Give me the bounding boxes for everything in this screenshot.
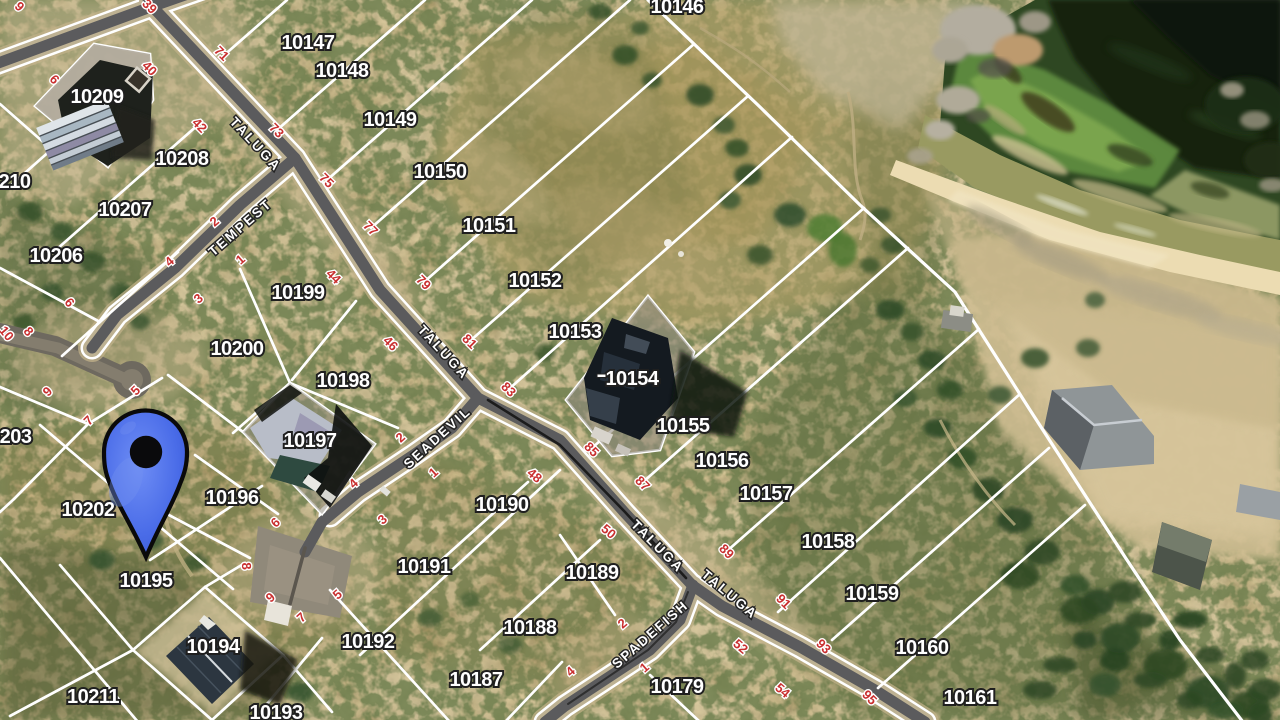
svg-text:10187: 10187: [449, 669, 502, 691]
svg-text:10199: 10199: [271, 282, 324, 304]
svg-text:10153: 10153: [548, 321, 601, 343]
svg-text:10198: 10198: [316, 370, 369, 392]
svg-text:10149: 10149: [363, 109, 416, 131]
svg-text:10152: 10152: [508, 270, 561, 292]
svg-text:10150: 10150: [413, 161, 466, 183]
svg-text:10161: 10161: [943, 687, 996, 709]
svg-text:10195: 10195: [119, 570, 172, 592]
svg-text:10157: 10157: [739, 483, 792, 505]
svg-text:10210: 10210: [0, 171, 31, 193]
svg-text:10197: 10197: [283, 430, 336, 452]
svg-text:10188: 10188: [503, 617, 556, 639]
svg-text:10207: 10207: [98, 199, 151, 221]
svg-text:10208: 10208: [155, 148, 208, 170]
svg-text:10202: 10202: [61, 499, 114, 521]
svg-text:10196: 10196: [205, 487, 258, 509]
svg-text:10189: 10189: [565, 562, 618, 584]
svg-text:10160: 10160: [895, 637, 948, 659]
svg-text:10155: 10155: [656, 415, 709, 437]
svg-text:10200: 10200: [210, 338, 263, 360]
svg-text:10206: 10206: [29, 245, 82, 267]
svg-text:10179: 10179: [650, 676, 703, 698]
svg-text:10191: 10191: [397, 556, 450, 578]
svg-text:10148: 10148: [315, 60, 368, 82]
svg-text:10151: 10151: [462, 215, 515, 237]
svg-text:10190: 10190: [475, 494, 528, 516]
svg-text:10146: 10146: [650, 0, 703, 18]
svg-text:10194: 10194: [186, 636, 240, 658]
svg-text:10154: 10154: [605, 368, 659, 390]
svg-text:10156: 10156: [695, 450, 748, 472]
svg-text:10147: 10147: [281, 32, 334, 54]
svg-text:10211: 10211: [67, 686, 119, 708]
svg-text:8: 8: [239, 562, 255, 571]
svg-text:10192: 10192: [341, 631, 394, 653]
svg-text:10209: 10209: [70, 86, 123, 108]
svg-text:10159: 10159: [845, 583, 898, 605]
svg-text:10158: 10158: [801, 531, 854, 553]
svg-text:10203: 10203: [0, 426, 32, 448]
svg-text:10193: 10193: [249, 702, 302, 720]
